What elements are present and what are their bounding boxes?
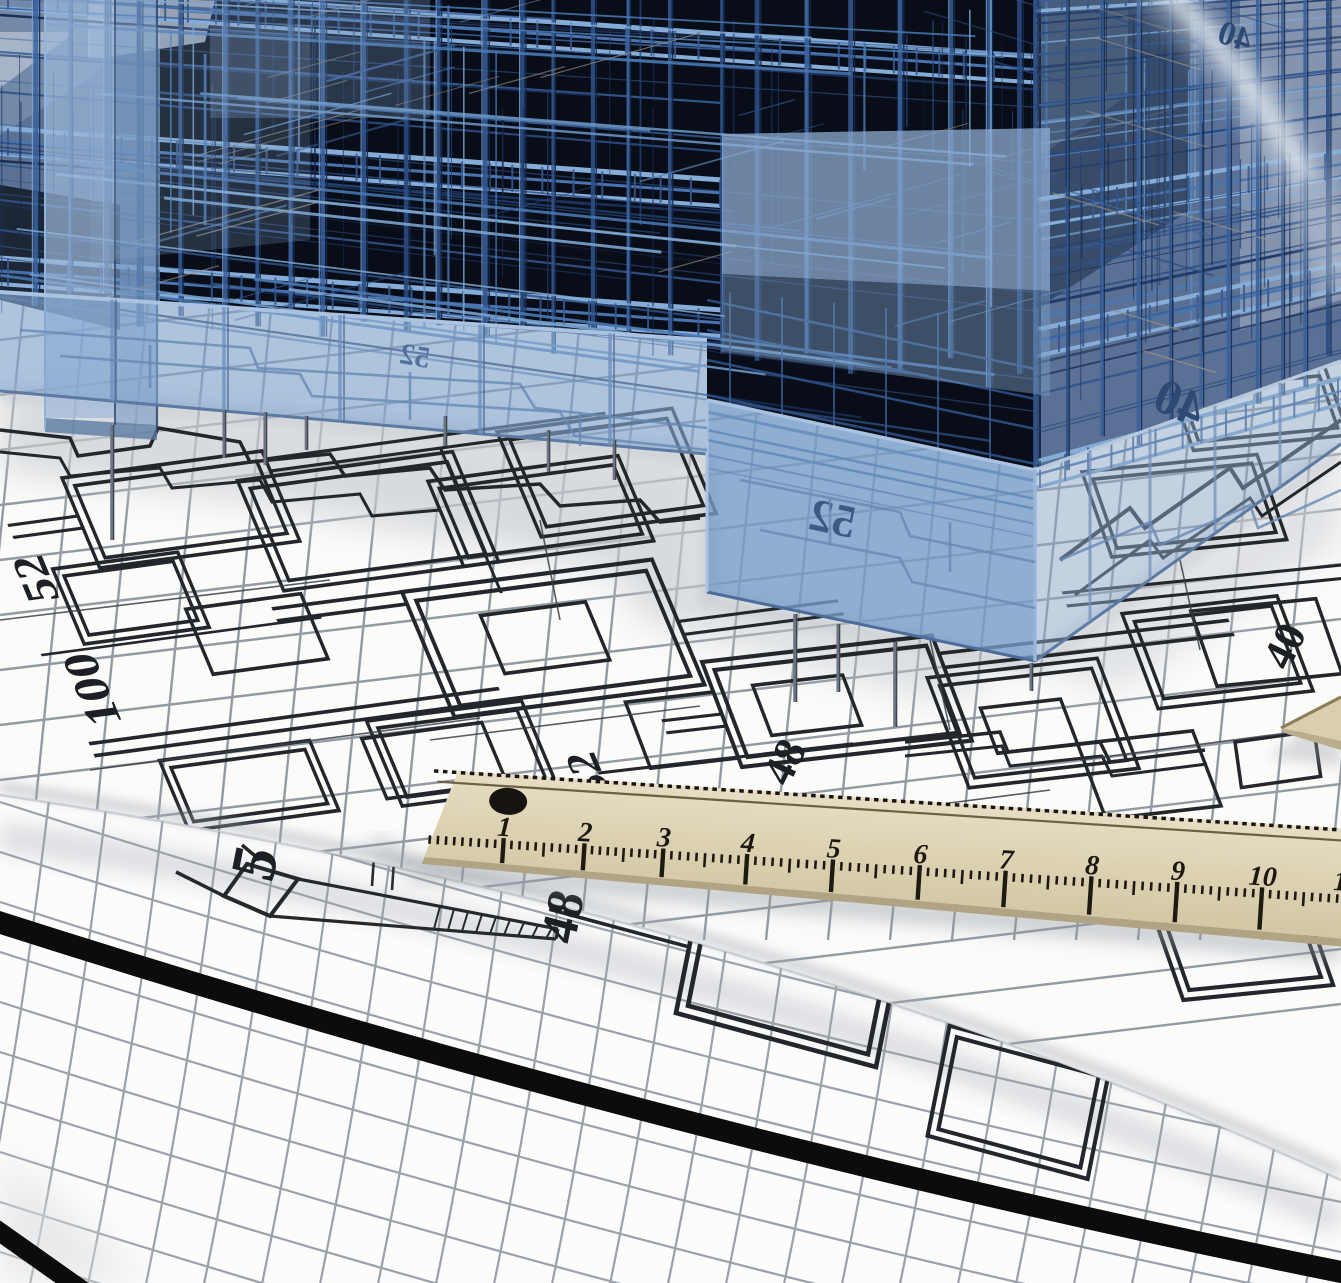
svg-text:10: 10 [1248,861,1278,894]
svg-text:5: 5 [826,833,842,865]
svg-text:2: 2 [576,817,593,849]
svg-text:6: 6 [913,839,929,871]
svg-text:52: 52 [397,337,432,375]
svg-text:11: 11 [1332,866,1341,899]
svg-text:9: 9 [1170,856,1186,888]
svg-text:8: 8 [1084,850,1100,882]
svg-text:1: 1 [496,812,512,844]
svg-text:3: 3 [655,822,672,854]
svg-text:4: 4 [739,827,756,859]
